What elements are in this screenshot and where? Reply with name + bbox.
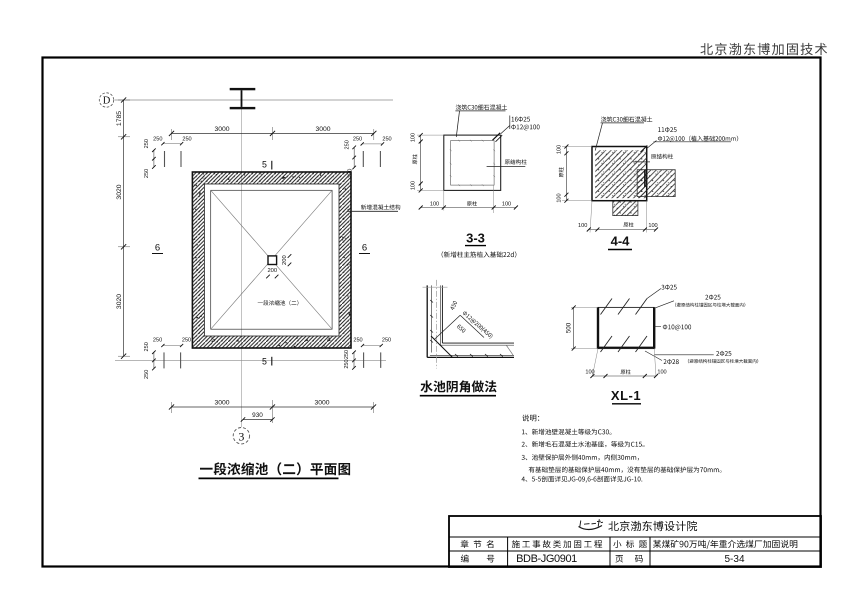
- svg-text:250: 250: [144, 169, 150, 178]
- svg-text:100: 100: [430, 201, 439, 207]
- svg-text:250: 250: [353, 338, 362, 344]
- svg-text:200: 200: [267, 268, 277, 274]
- svg-text:D: D: [103, 96, 111, 107]
- svg-text:930: 930: [252, 412, 263, 419]
- svg-text:BDB-JG0901: BDB-JG0901: [516, 553, 577, 565]
- svg-text:250: 250: [153, 137, 162, 143]
- svg-text:3000: 3000: [214, 400, 229, 407]
- svg-text:250: 250: [144, 342, 150, 351]
- svg-text:3-3: 3-3: [466, 231, 485, 246]
- svg-text:250: 250: [144, 139, 150, 148]
- svg-text:250: 250: [382, 338, 391, 344]
- svg-text:3000: 3000: [315, 126, 330, 133]
- svg-text:3020: 3020: [116, 294, 123, 309]
- svg-text:100: 100: [410, 133, 416, 142]
- svg-text:250: 250: [344, 350, 350, 359]
- svg-text:250: 250: [344, 359, 350, 368]
- svg-text:100: 100: [657, 370, 666, 376]
- svg-text:100: 100: [585, 370, 594, 376]
- svg-text:250: 250: [348, 169, 354, 178]
- svg-text:200: 200: [282, 255, 288, 265]
- svg-text:4-4: 4-4: [611, 234, 631, 249]
- svg-text:3000: 3000: [314, 400, 329, 407]
- svg-text:5-34: 5-34: [724, 554, 744, 565]
- svg-text:5: 5: [262, 160, 267, 170]
- svg-text:250: 250: [345, 140, 351, 149]
- svg-text:100: 100: [648, 223, 657, 229]
- svg-text:250: 250: [182, 338, 191, 344]
- svg-text:100: 100: [502, 201, 511, 207]
- svg-text:100: 100: [578, 223, 587, 229]
- svg-text:1785: 1785: [116, 111, 123, 126]
- svg-text:5: 5: [262, 357, 267, 367]
- svg-text:100: 100: [557, 193, 563, 202]
- svg-text:3: 3: [238, 429, 244, 443]
- svg-text:250: 250: [153, 338, 162, 344]
- svg-text:250: 250: [382, 137, 391, 143]
- svg-text:250: 250: [144, 370, 150, 379]
- svg-text:3020: 3020: [116, 184, 123, 199]
- svg-text:6: 6: [155, 243, 160, 254]
- svg-text:3000: 3000: [214, 126, 229, 133]
- svg-text:6: 6: [362, 243, 367, 254]
- svg-text:100: 100: [410, 181, 416, 190]
- svg-text:500: 500: [566, 322, 573, 333]
- svg-text:XL-1: XL-1: [611, 388, 641, 403]
- svg-text:250: 250: [353, 137, 362, 143]
- svg-text:250: 250: [182, 137, 191, 143]
- svg-text:100: 100: [557, 145, 563, 154]
